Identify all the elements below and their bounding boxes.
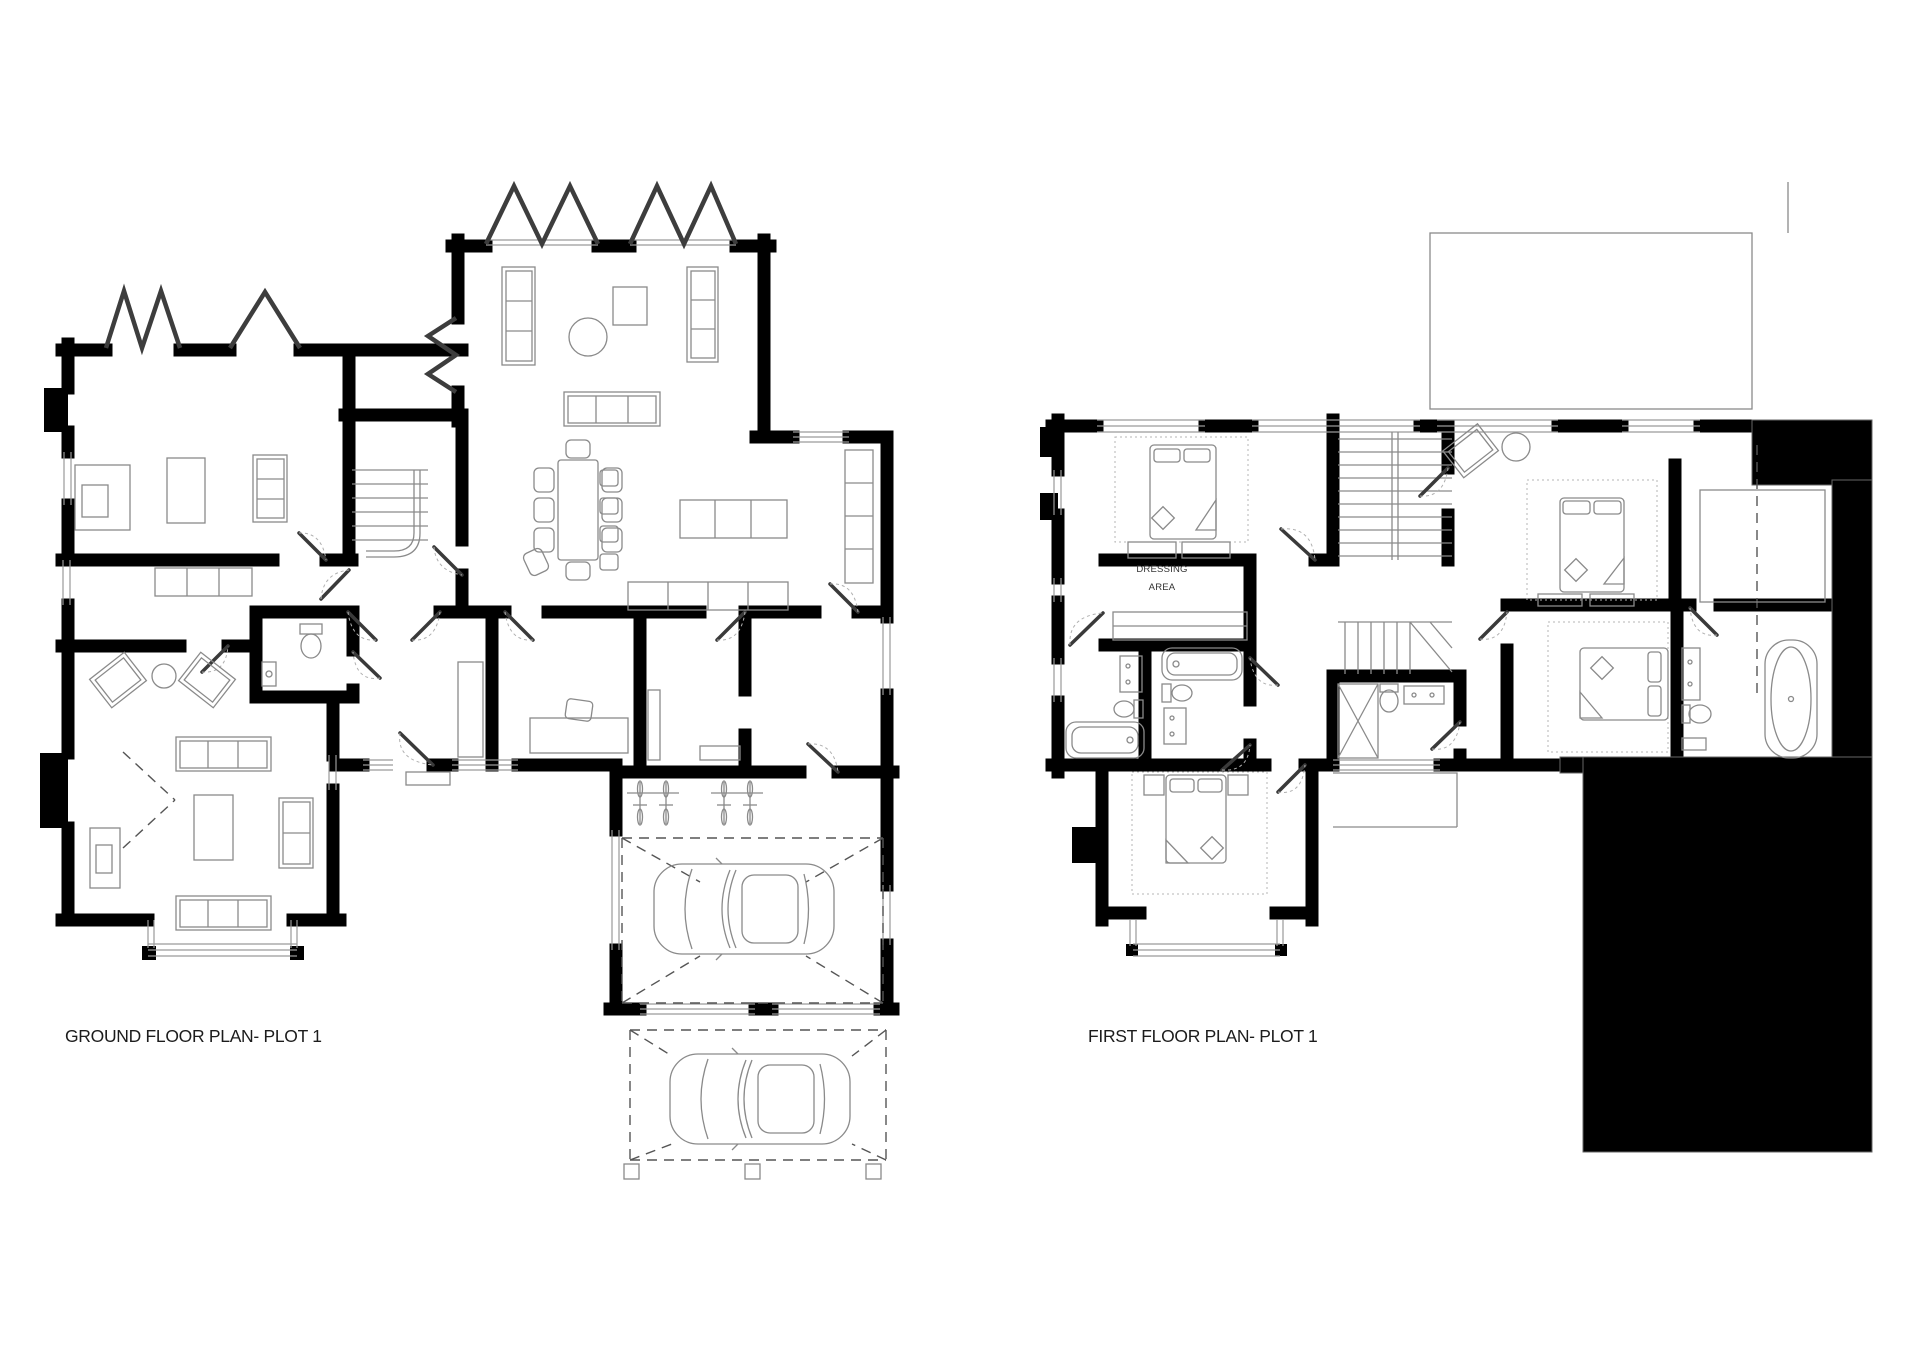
carport-post [624,1164,639,1179]
ff-chimney-breast [1072,827,1102,863]
gf-sitting-room-furniture [75,455,287,596]
dressing-area-label-line1: DRESSING [1136,564,1187,575]
floor-plan-canvas: GROUND FLOOR PLAN- PLOT 1 [0,0,1920,1358]
ff-roof-outline [1430,182,1788,409]
dressing-area-label-line2: AREA [1149,582,1176,593]
ff-bedroom3-furniture [1443,424,1657,606]
ff-bedroom4-furniture [1132,772,1267,894]
freestanding-bath [1765,640,1817,758]
ff-stairs [1338,432,1452,674]
ground-floor-plan: GROUND FLOOR PLAN- PLOT 1 [40,186,893,1179]
gf-chimney-breast-bottom [40,753,68,828]
ff-bathroom-mid-fixtures [1162,648,1242,744]
garage-car [654,858,834,960]
carport-post [745,1164,760,1179]
gf-garage [622,781,883,1003]
gf-lounge-furniture [502,267,718,426]
gf-carport [624,1030,886,1179]
floor-plan-sheet: GROUND FLOOR PLAN- PLOT 1 [0,0,1920,1358]
gf-dining-furniture [522,440,622,580]
ff-bedroom2-furniture [1115,437,1248,558]
gf-walls [40,240,893,1009]
gf-wc-fixtures [262,624,322,686]
gf-bifold-zigzag-icons [106,186,736,392]
ff-shower-room-fixtures [1338,684,1444,758]
carport-post [866,1164,881,1179]
ground-floor-plan-label: GROUND FLOOR PLAN- PLOT 1 [65,1026,322,1046]
ff-bathroom-left-fixtures [1066,656,1144,758]
first-floor-plan: DRESSING AREA [1040,182,1872,1152]
carport-car [670,1048,850,1150]
gf-stairs [352,470,428,557]
ff-lower-roof-mass [1583,757,1872,1152]
ff-dressing-area: DRESSING AREA [1113,564,1247,640]
ff-master-bath-fixtures [1682,640,1817,758]
bicycle-icons [627,781,763,825]
first-floor-plan-label: FIRST FLOOR PLAN- PLOT 1 [1088,1026,1317,1046]
gf-chimney-breast-top [44,388,68,432]
